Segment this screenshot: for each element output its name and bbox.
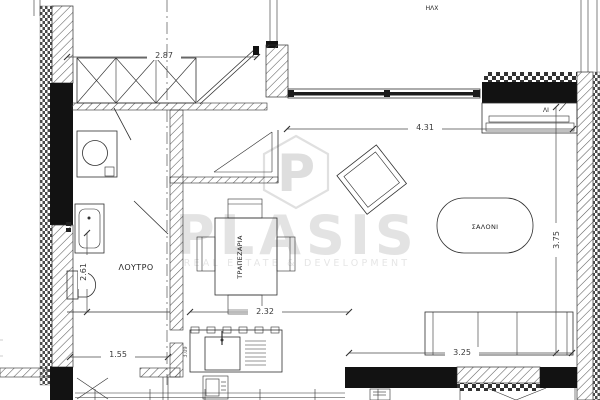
entrance-door <box>197 46 259 104</box>
left-wall-middle <box>52 225 73 367</box>
dim-kitchen-width: 2.32 <box>256 307 274 316</box>
window-sill-unit: ΛΙ <box>482 103 577 133</box>
balcony-drain-unit <box>370 389 390 400</box>
bathroom-wall <box>170 110 183 330</box>
left-wall-upper <box>52 6 73 83</box>
floor-plan-page: P PLASIS REAL ESTATE & DEVELOPMENT <box>0 0 600 400</box>
bottom-wall-hatch <box>457 367 540 383</box>
dim-living-width: 4.31 <box>416 123 434 132</box>
right-wall <box>577 72 593 400</box>
top-right-black-header <box>482 82 577 103</box>
living-window <box>288 89 480 98</box>
wall-valve <box>66 222 71 226</box>
dim-bathroom-width: 1.55 <box>109 350 127 359</box>
bathroom-door-swing-2 <box>134 201 168 234</box>
top-note-label: ΗΛΧ <box>426 5 439 12</box>
bottom-wall-checker <box>457 383 540 391</box>
watermark-logo-letter: P <box>277 144 315 204</box>
coffee-table: ΣΑΛΟΝΙ <box>437 198 533 253</box>
washing-machine <box>77 131 117 177</box>
top-right-checker <box>484 72 577 82</box>
bathroom-door-swing <box>114 108 131 140</box>
living-label: ΣΑΛΟΝΙ <box>472 223 499 231</box>
left-wall-black-upper <box>50 83 73 225</box>
floor-plan-drawing: P PLASIS REAL ESTATE & DEVELOPMENT <box>0 0 600 400</box>
top-column <box>266 45 288 97</box>
balcony-railing <box>75 389 345 400</box>
watermark-tagline: REAL ESTATE & DEVELOPMENT <box>184 258 411 269</box>
bathroom-label: ΛΟΥΤΡΟ <box>118 263 153 272</box>
kitchen <box>190 327 282 372</box>
dim-wall-side: 3.09 <box>183 346 189 357</box>
sill-note-label: ΛΙ <box>543 107 549 114</box>
kitchen-sink <box>205 331 240 370</box>
dining-label: ΤΡΑΠΕΖΑΡΙΑ <box>236 235 244 280</box>
bottom-wall-black-left <box>345 367 457 388</box>
closet <box>77 58 196 103</box>
bottom-wall-left-piece <box>0 368 47 377</box>
dim-closet-width: 2.87 <box>155 51 173 60</box>
dim-living-depth: 3.75 <box>552 231 561 249</box>
hall-wall <box>72 103 267 110</box>
kitchen-drainer <box>245 341 266 365</box>
right-wall-insulation <box>593 72 600 400</box>
corridor-wall <box>170 177 278 183</box>
left-wall-black-lower <box>50 367 73 400</box>
dim-sofa-wall: 3.25 <box>453 348 471 357</box>
dim-bathroom-depth: 2.61 <box>79 263 88 281</box>
wall-valve <box>66 228 71 232</box>
bathroom-wall-lower <box>170 343 183 377</box>
bottom-wall-black-right <box>540 367 577 388</box>
balcony-fixture <box>203 376 228 399</box>
bathroom-sink <box>75 204 104 253</box>
